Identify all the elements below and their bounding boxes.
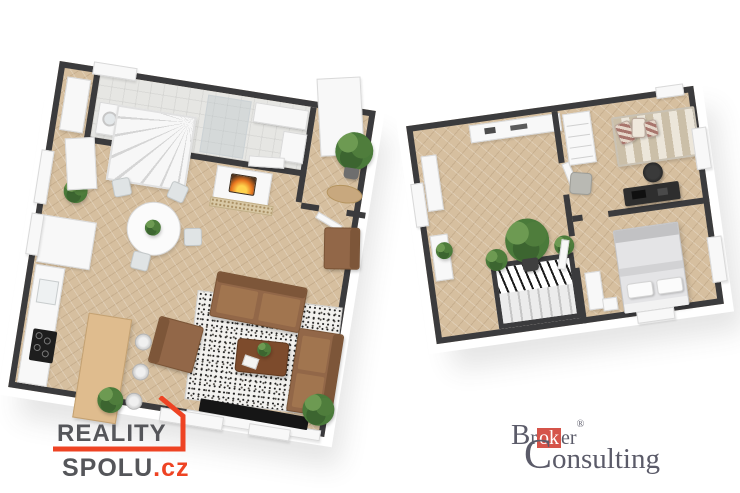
hall-sideboard bbox=[469, 113, 563, 144]
accent-chair bbox=[569, 172, 592, 195]
drawer-line bbox=[567, 123, 589, 127]
burner-icon bbox=[33, 343, 41, 351]
sideboard-item bbox=[510, 123, 528, 130]
room-wall-left bbox=[572, 215, 583, 222]
hall-bottom-wall-right bbox=[346, 210, 366, 219]
window-right bbox=[691, 127, 712, 171]
burner-icon bbox=[35, 332, 43, 340]
armchair-backrest bbox=[350, 229, 360, 269]
single-bed bbox=[611, 106, 701, 167]
reading-armchair bbox=[324, 227, 361, 270]
spolu-text: SPOLU bbox=[62, 454, 153, 482]
window-right bbox=[707, 235, 728, 283]
kitchen-sink bbox=[36, 279, 60, 306]
blanket-fold bbox=[619, 260, 683, 277]
office-chair bbox=[642, 161, 665, 184]
bed-pillow bbox=[643, 119, 660, 139]
double-bed bbox=[613, 221, 690, 313]
desk-item bbox=[657, 188, 668, 196]
reality-spolu-logo: REALITY SPOLU.cz bbox=[50, 396, 260, 490]
desk-monitor bbox=[631, 190, 646, 200]
consulting-seg: onsulting bbox=[552, 443, 660, 475]
drawer-line bbox=[571, 156, 593, 160]
loveseat-cushion bbox=[298, 335, 331, 373]
bed-pillow bbox=[626, 281, 654, 299]
bar-stool bbox=[131, 362, 150, 381]
upper-floor-interior bbox=[406, 86, 724, 344]
dining-chair bbox=[184, 228, 202, 246]
dresser bbox=[562, 111, 597, 166]
burner-icon bbox=[41, 350, 49, 358]
cooktop bbox=[29, 328, 58, 363]
reality-wordmark: REALITY bbox=[57, 420, 167, 448]
window-left bbox=[33, 149, 54, 204]
hall-tree-pot bbox=[343, 167, 360, 180]
jute-rug bbox=[325, 182, 363, 205]
bed-pillow bbox=[656, 276, 684, 294]
consulting-wordmark: Consulting bbox=[524, 431, 660, 479]
sideboard-item bbox=[484, 127, 496, 134]
hall-bottom-wall-left bbox=[301, 203, 320, 212]
sofa-cushion bbox=[216, 285, 259, 320]
shower-glass bbox=[199, 95, 252, 159]
sofa-cushion bbox=[258, 293, 301, 328]
side-door-open bbox=[65, 137, 98, 190]
dining-chair bbox=[111, 177, 132, 198]
spolu-wordmark: SPOLU.cz bbox=[62, 454, 189, 483]
broker-consulting-logo: Broker® Consulting bbox=[503, 419, 713, 483]
registered-mark-icon: ® bbox=[577, 419, 585, 430]
ground-floor-plan bbox=[8, 61, 376, 437]
headboard bbox=[614, 222, 679, 243]
nightstand bbox=[602, 297, 619, 312]
fire-icon bbox=[228, 173, 257, 196]
upper-floor-plan bbox=[406, 86, 724, 344]
consulting-initial: C bbox=[524, 432, 552, 478]
cz-tld: .cz bbox=[153, 454, 189, 482]
ground-floor-interior bbox=[8, 61, 376, 437]
drawer-line bbox=[570, 145, 592, 149]
drawer-line bbox=[568, 134, 590, 138]
dining-chair bbox=[130, 250, 152, 272]
window-top bbox=[655, 83, 684, 99]
landing-tree-pot bbox=[522, 257, 540, 272]
burner-icon bbox=[43, 337, 51, 345]
kitchen-tall-cabinets bbox=[36, 214, 97, 270]
render-canvas: REALITY SPOLU.cz Broker® Consulting bbox=[0, 0, 740, 493]
